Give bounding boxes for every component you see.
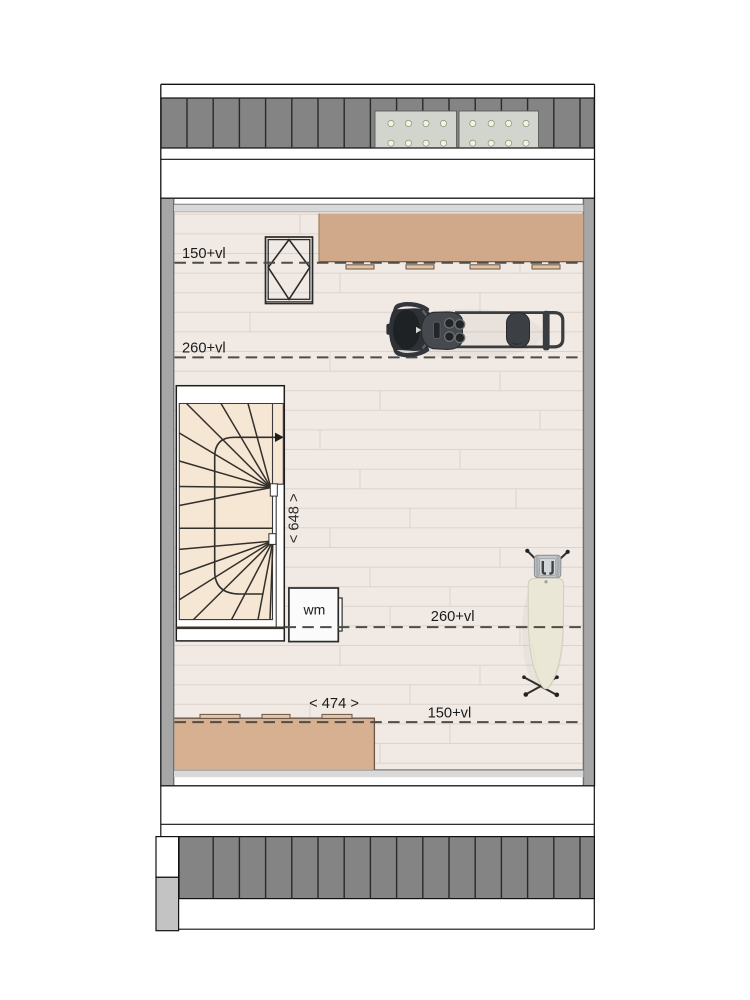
svg-text:wm: wm — [303, 601, 326, 617]
svg-text:260+vl: 260+vl — [182, 340, 226, 356]
svg-text:150+vl: 150+vl — [428, 706, 472, 722]
svg-text:260+vl: 260+vl — [431, 609, 475, 625]
svg-text:< 474 >: < 474 > — [309, 696, 359, 712]
svg-text:150+vl: 150+vl — [182, 246, 226, 262]
svg-text:< 648 >: < 648 > — [287, 493, 303, 543]
